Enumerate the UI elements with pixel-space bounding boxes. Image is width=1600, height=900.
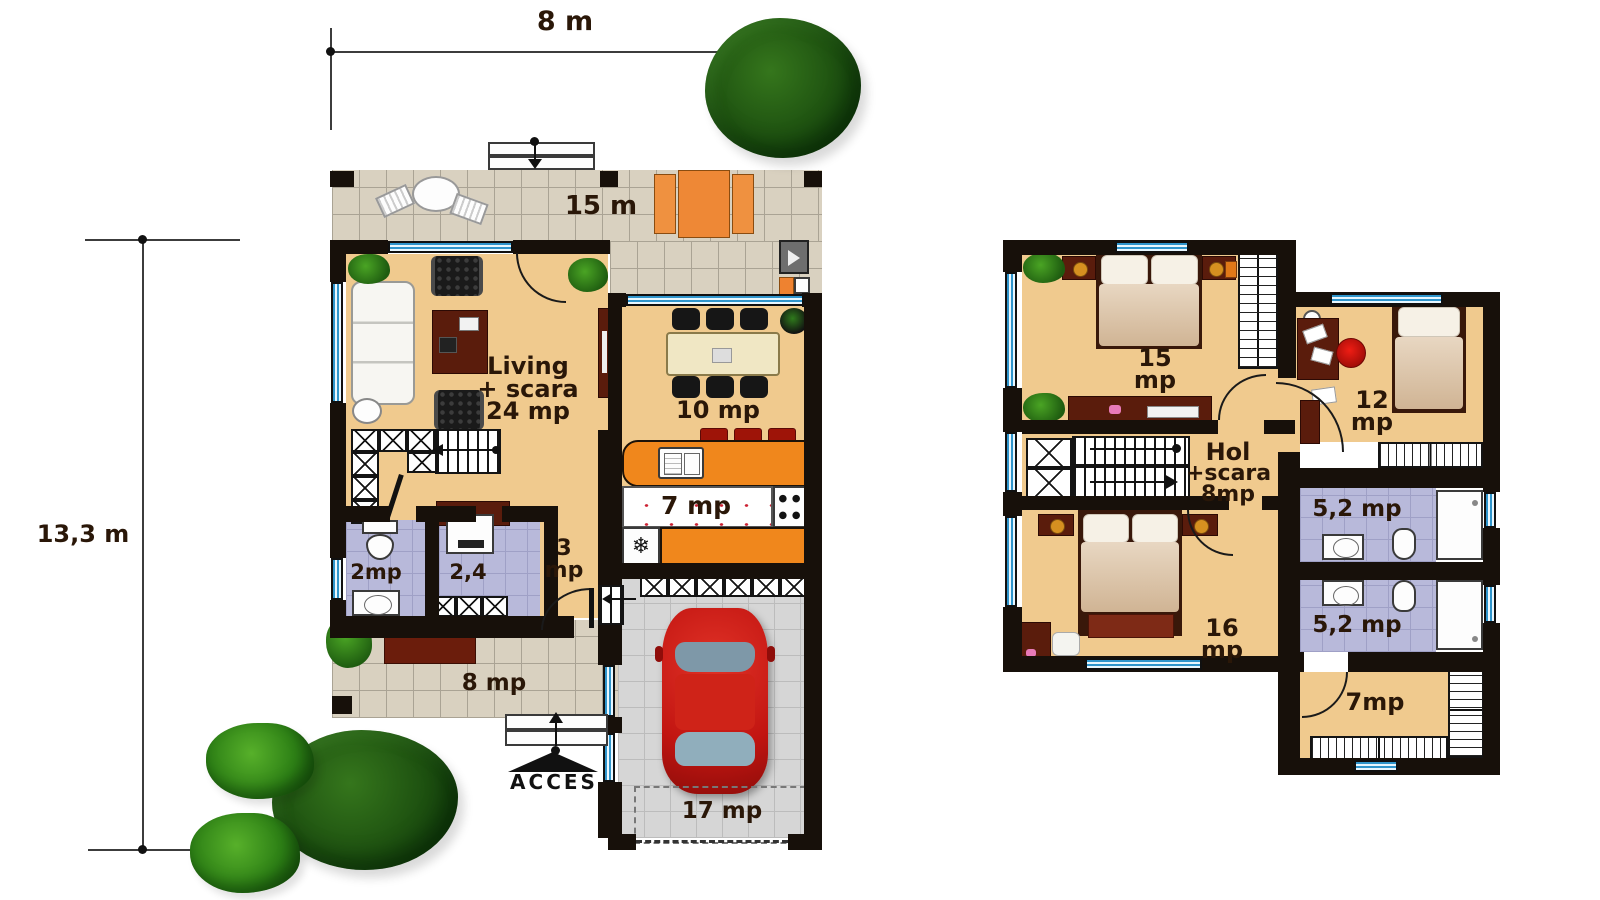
table-decor — [712, 348, 732, 363]
desk — [1019, 622, 1051, 660]
bath-divider-wall — [425, 520, 439, 618]
armchair — [431, 256, 483, 296]
dining-chair — [740, 376, 768, 398]
garage-cabinet — [640, 577, 668, 597]
dressing-bottom-window — [1354, 760, 1398, 772]
pillow — [1101, 255, 1148, 285]
dining-chair — [706, 376, 734, 398]
access-label: ACCES — [508, 772, 600, 793]
garage-label: 17 mp — [678, 800, 766, 824]
bath-left-window — [331, 558, 343, 600]
bedroom1-hall-wall — [1022, 420, 1218, 434]
left-dimension-line — [142, 240, 144, 850]
storage-x-cell — [482, 596, 508, 617]
storage-x-cell — [456, 596, 482, 617]
double-bed — [1096, 251, 1202, 349]
shower-drain — [1472, 636, 1478, 642]
shower-cabin — [1436, 580, 1483, 650]
garage-bottom-corner — [788, 834, 822, 850]
stair-arrow-dot — [492, 446, 500, 454]
car-windshield — [675, 642, 755, 672]
left-dimension-dot-top — [138, 235, 147, 244]
bath-sink — [1322, 580, 1364, 606]
upper-right-wall — [1483, 292, 1500, 492]
garage-window — [603, 665, 615, 717]
terrace-post — [804, 171, 822, 187]
living-left-window — [331, 282, 343, 403]
dressing-label: 7mp — [1330, 690, 1420, 715]
stove — [773, 486, 806, 528]
sink-basin — [1333, 586, 1359, 606]
washer-door — [458, 540, 484, 548]
left-dimension-dot-bottom — [138, 845, 147, 854]
floor-plan-sheet: 8 m 13,3 m — [0, 0, 1600, 900]
bbq-grill — [779, 240, 809, 274]
staircase-ground — [435, 429, 501, 474]
bath-label: 2mp — [350, 562, 402, 584]
plant — [1023, 253, 1065, 283]
living-label-line3: 24 mp — [468, 399, 588, 424]
dining-table — [666, 332, 780, 376]
car — [662, 608, 768, 794]
living-dining-wall — [608, 307, 622, 430]
upper-left-wall — [1003, 492, 1022, 516]
access-arrow — [508, 752, 598, 772]
bath-bottom-wall — [332, 616, 558, 638]
toilet — [362, 520, 398, 534]
bath-top-wall — [502, 506, 546, 522]
hall-left-window — [1005, 432, 1017, 492]
storage-x-cell — [351, 429, 379, 452]
terrace-step-arrow-head — [528, 159, 542, 169]
terrace-top-label: 15 m — [556, 193, 646, 220]
nightstand — [1062, 256, 1096, 280]
lounge-chair — [732, 174, 754, 234]
dining-label: 10 mp — [672, 398, 764, 423]
kitchen-counter-top — [622, 440, 806, 487]
bath-dressing-wall — [1298, 652, 1304, 672]
plant — [568, 258, 608, 292]
bath-sink — [1322, 534, 1364, 560]
bath-divider-wall — [1298, 562, 1500, 580]
garage-cabinet — [668, 577, 696, 597]
living-top-window — [388, 241, 513, 253]
pillow — [1398, 307, 1460, 337]
car-roof — [675, 674, 755, 730]
tv-icon — [602, 331, 607, 373]
dining-chair — [706, 308, 734, 330]
lamp — [1050, 519, 1065, 534]
kitchen-label: 7 mp — [656, 493, 736, 519]
desk — [1297, 318, 1339, 380]
office-top-window — [1330, 293, 1443, 305]
right-wall — [804, 293, 822, 838]
hall-kitchen-wall — [598, 625, 622, 665]
office-chair — [1336, 338, 1366, 368]
blanket — [1099, 284, 1199, 346]
stair-arrow-head — [1164, 474, 1178, 490]
dining-top-wall — [608, 293, 626, 307]
plant — [1023, 393, 1065, 423]
lamp — [1209, 262, 1224, 277]
garage-cabinet — [724, 577, 752, 597]
garage-step-arrow-head — [602, 593, 612, 605]
left-dimension-tick-top — [85, 239, 240, 241]
upper-right-wall — [1483, 623, 1500, 775]
stair-arrow-shaft — [442, 449, 494, 451]
side-table-round — [352, 398, 382, 424]
stair-arrow-shaft — [1090, 481, 1166, 483]
garage-left-wall — [598, 782, 622, 838]
left-wall — [330, 403, 346, 558]
dressing-wardrobe-right — [1448, 662, 1484, 758]
terrace-post — [330, 171, 354, 187]
dining-top-window — [626, 294, 804, 306]
hall-bedroom2-wall — [1262, 496, 1295, 510]
bath-top-window — [1484, 492, 1496, 528]
stair-arrow-head — [432, 444, 443, 456]
top-dimension-tick-left — [330, 28, 332, 130]
car-rear-window — [675, 732, 755, 766]
sink-basin — [684, 453, 700, 475]
paper — [1311, 347, 1334, 366]
stair-guide-line — [1090, 448, 1174, 450]
terrace-bottom-label: 8 mp — [456, 672, 532, 696]
dining-chair — [672, 308, 700, 330]
grill-icon — [788, 250, 800, 266]
laptop-on-table — [439, 337, 457, 353]
toilet — [1392, 528, 1416, 560]
upper-hall-label-line3: 8mp — [1196, 484, 1260, 507]
blanket — [1081, 542, 1179, 612]
grill-side-table — [794, 277, 810, 294]
plant — [348, 254, 390, 284]
bedroom2-bottom-window — [1085, 658, 1202, 670]
living-top-wall — [513, 240, 610, 254]
decor-pink — [1109, 405, 1121, 414]
dining-chair — [740, 308, 768, 330]
terrace-bottom-post — [332, 696, 352, 714]
stair-dot — [1172, 444, 1181, 453]
entry-arrow-head — [549, 712, 563, 723]
tree — [705, 18, 861, 158]
lounge-sofa — [678, 170, 730, 238]
bedroom2-left-window — [1005, 516, 1017, 607]
bedroom1-top-window — [1115, 241, 1189, 253]
toilet — [1392, 580, 1416, 612]
freezer: ❄ — [622, 527, 660, 566]
left-wall — [330, 240, 346, 282]
sofa — [351, 281, 415, 405]
storage-x-cell — [379, 429, 407, 452]
bath-sink — [352, 590, 400, 616]
pillow — [1083, 514, 1129, 543]
sink-basin — [664, 453, 682, 475]
storage-x-cell — [351, 476, 379, 500]
wardrobe — [1238, 251, 1278, 369]
tv-icon — [1147, 406, 1199, 418]
foot-bench — [1088, 614, 1174, 638]
bedroom1-label-line2: mp — [1125, 368, 1185, 393]
lounge-set — [654, 170, 760, 236]
storage-x-cell — [407, 429, 435, 452]
decor-box — [1225, 261, 1237, 278]
car-mirror — [767, 646, 775, 662]
upper-left-wall — [1003, 240, 1022, 272]
bush — [190, 813, 300, 893]
wardrobe-band — [1378, 442, 1483, 468]
bedroom2-label-line2: mp — [1192, 638, 1252, 663]
garage-steps — [598, 585, 624, 625]
top-dimension-dot-left — [326, 47, 335, 56]
kitchen-counter-bottom — [660, 527, 806, 566]
entrance-door-leaf — [589, 588, 594, 628]
double-bed — [1078, 510, 1182, 636]
storage-x-cell — [351, 452, 379, 476]
terrace-bench — [384, 636, 476, 664]
garage-cabinet — [696, 577, 724, 597]
office-bath-wall — [1298, 468, 1500, 488]
garage-step-arrow-shaft — [608, 598, 636, 600]
kitchen-sink — [658, 447, 704, 479]
terrace-step-arrow-shaft — [534, 143, 536, 160]
height-dimension-label: 13,3 m — [28, 522, 138, 547]
single-bed — [1392, 303, 1466, 413]
lounge-chair — [654, 174, 676, 234]
office-label-line2: mp — [1342, 410, 1402, 435]
stair-x-cell — [1026, 468, 1072, 498]
tv-on-table — [459, 317, 479, 331]
hall-label-line2: mp — [542, 560, 586, 583]
sink-basin — [1333, 538, 1359, 558]
bath-top-label: 5,2 mp — [1307, 498, 1407, 522]
desk-chair — [1052, 632, 1080, 656]
bush — [206, 723, 314, 799]
bath-top-wall — [340, 506, 390, 522]
shower-drain — [1472, 500, 1478, 506]
bath-bottom-window — [1484, 585, 1496, 623]
pillow — [1132, 514, 1178, 543]
bedroom1-left-window — [1005, 272, 1017, 388]
stair-x-cell — [1026, 438, 1072, 468]
terrace-step — [488, 142, 595, 156]
lamp — [1073, 262, 1088, 277]
upper-left-wall — [1003, 388, 1022, 432]
garage-door-dashed — [636, 840, 788, 843]
freezer-icon: ❄ — [632, 534, 650, 559]
nightstand — [1202, 256, 1236, 280]
upper-mid-vertical-wall — [1278, 240, 1296, 378]
blanket — [1395, 337, 1463, 409]
shower-cabin — [1436, 490, 1483, 560]
entry-arrow-shaft — [555, 722, 557, 746]
paper — [1302, 324, 1327, 345]
pillow — [1151, 255, 1198, 285]
sink-basin — [364, 595, 392, 615]
garage-bottom-corner — [608, 834, 636, 850]
terrace-post — [600, 171, 618, 187]
bath-bottom-label: 5,2 mp — [1307, 614, 1407, 638]
dining-chair — [672, 376, 700, 398]
garage-cabinet — [752, 577, 780, 597]
bath-dressing-wall — [1348, 652, 1500, 672]
width-dimension-label: 8 m — [505, 8, 625, 36]
car-mirror — [655, 646, 663, 662]
living-top-wall — [340, 240, 388, 254]
kitchen-bottom-wall — [622, 563, 806, 579]
nightstand — [1038, 514, 1074, 536]
wc-label: 2,4 — [444, 562, 492, 584]
hall-kitchen-wall — [598, 430, 622, 585]
